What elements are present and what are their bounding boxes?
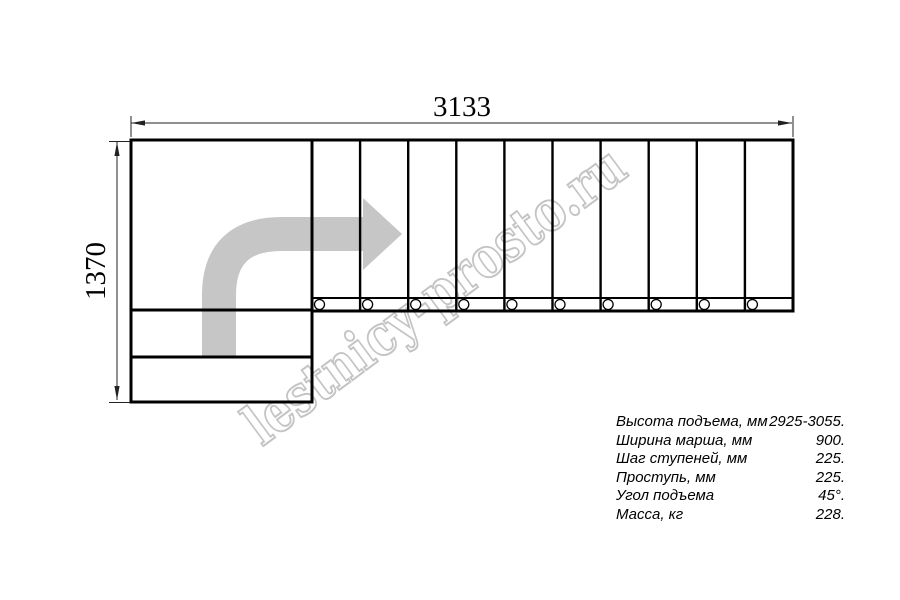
screw-hole-icon — [363, 300, 373, 310]
dim-arrow-down-icon — [114, 386, 119, 400]
spec-row: Угол подъема 45°. — [616, 487, 845, 506]
spec-row: Ширина марша, мм 900. — [616, 432, 845, 451]
screw-hole-icon — [651, 300, 661, 310]
spec-row: Шаг ступеней, мм 225. — [616, 450, 845, 469]
spec-row: Масса, кг 228. — [616, 506, 845, 525]
spec-label: Проступь, мм — [616, 469, 716, 488]
width-dimension-value: 3133 — [433, 91, 491, 123]
screw-hole-icon — [411, 300, 421, 310]
screw-hole-icon — [603, 300, 613, 310]
screw-hole-icon — [699, 300, 709, 310]
screw-hole-icon — [315, 300, 325, 310]
spec-label: Шаг ступеней, мм — [616, 450, 747, 469]
spec-row: Проступь, мм 225. — [616, 469, 845, 488]
spec-value: 228. — [816, 506, 845, 525]
dim-arrow-up-icon — [114, 142, 119, 156]
spec-value: 225. — [816, 469, 845, 488]
spec-value: 2925-3055. — [769, 413, 845, 432]
spec-table: Высота подъема, мм 2925-3055. Ширина мар… — [616, 413, 845, 525]
height-dimension-value: 1370 — [80, 242, 112, 300]
dim-arrow-right-icon — [778, 120, 792, 125]
spec-value: 900. — [816, 432, 845, 451]
screw-hole-icon — [459, 300, 469, 310]
spec-label: Угол подъема — [616, 487, 714, 506]
spec-value: 45°. — [818, 487, 845, 506]
spec-label: Ширина марша, мм — [616, 432, 752, 451]
watermark-text: lestnicy-prosto.ru — [231, 133, 638, 458]
spec-label: Высота подъема, мм — [616, 413, 768, 432]
screw-hole-icon — [555, 300, 565, 310]
direction-arrow-head-icon — [363, 198, 402, 270]
stair-plan-page: lestnicy-prosto.ru 3133 1370 — [0, 0, 900, 600]
screw-hole-icon — [507, 300, 517, 310]
spec-value: 225. — [816, 450, 845, 469]
spec-label: Масса, кг — [616, 506, 683, 525]
spec-row: Высота подъема, мм 2925-3055. — [616, 413, 845, 432]
dim-arrow-left-icon — [131, 120, 145, 125]
screw-hole-icon — [747, 300, 757, 310]
